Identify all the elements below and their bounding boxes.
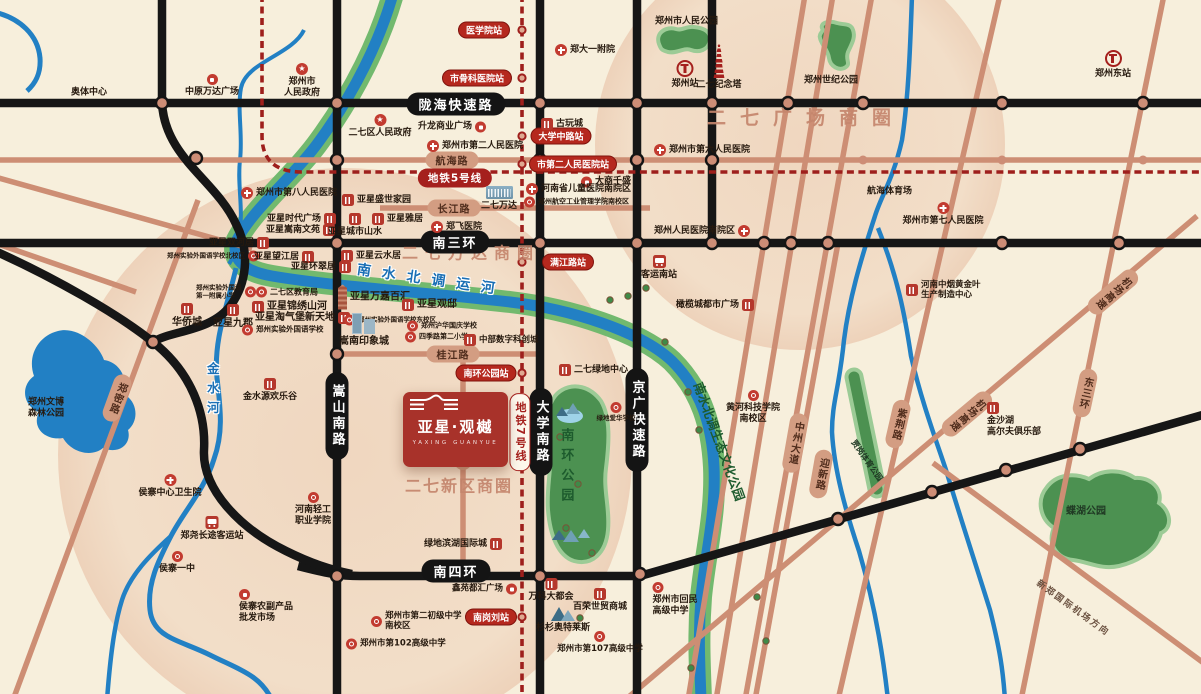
building-icon bbox=[349, 213, 361, 225]
zhongyuan-wanda: 中原万达广场 bbox=[185, 74, 239, 98]
erqi-greenland-center: 二七绿地中心 bbox=[559, 364, 628, 376]
zhengda-first-hospital: 郑大一附院 bbox=[555, 44, 615, 56]
erqi-wanda-building: 二七万达 bbox=[481, 186, 517, 212]
zz-no8-hospital-label: 郑州市第八人民医院 bbox=[256, 188, 337, 199]
tower-icon bbox=[338, 285, 347, 310]
lvdi-aihua-school: 绿地爱华学校 bbox=[597, 402, 636, 423]
hospital-icon bbox=[241, 187, 253, 199]
jinshahu-golf: 金沙湖 高尔夫俱乐部 bbox=[987, 402, 1041, 437]
yaxing-shengshi: 亚星盛世家园 bbox=[342, 194, 411, 206]
zhengfei-hospital: 郑飞医院 bbox=[431, 221, 482, 233]
longhai-expressway-label: 陇海快速路 bbox=[406, 93, 505, 116]
songnan-yinxiangcheng: 嵩南印象城 bbox=[339, 312, 389, 348]
yaxing-songnan: 亚星嵩南文苑 bbox=[266, 224, 335, 236]
zhongbu-digital-label: 中部数字科创城 bbox=[479, 335, 539, 345]
zz-no7-hospital-label: 郑州市第七人民医院 bbox=[902, 216, 983, 227]
erqi-district-gov-label: 二七区人民政府 bbox=[348, 128, 411, 139]
waiguoyu-school-label: 郑州实验外国语学校 bbox=[256, 326, 324, 335]
erqi-district-gov: 二七区人民政府 bbox=[348, 114, 411, 139]
bus-icon bbox=[205, 516, 218, 529]
yaxing-songnan-label: 亚星嵩南文苑 bbox=[266, 225, 320, 236]
houzhai-no1-school: 侯寨一中 bbox=[159, 551, 195, 575]
yaxing-shuanghe-label: 亚星双河居 bbox=[209, 238, 254, 249]
project-logo-mark bbox=[403, 392, 465, 414]
yaxing-wanjia: 亚星万嘉百汇 bbox=[338, 285, 410, 310]
station-manjianglu: 满江路站 bbox=[542, 254, 594, 271]
aoti-center: 奥体中心 bbox=[71, 88, 107, 99]
zhengzhou-station-label: 郑州站 bbox=[671, 79, 698, 90]
building-icon bbox=[490, 538, 502, 550]
yaxing-yunshui-label: 亚星云水居 bbox=[356, 251, 401, 262]
gov-icon bbox=[374, 114, 386, 126]
houzhai-market-label: 侯寨农副产品 批发市场 bbox=[239, 602, 293, 623]
building-icon bbox=[342, 194, 354, 206]
school-icon bbox=[652, 582, 663, 593]
zhengda-first-hospital-label: 郑大一附院 bbox=[570, 45, 615, 56]
yaxing-yaju-label: 亚星雅居 bbox=[387, 214, 423, 225]
biz-erqi-guangchang-label: 二七广场商圈 bbox=[707, 107, 905, 129]
yaxing-chengshi-shanshui-label: 亚星城市山水 bbox=[328, 227, 382, 238]
building-icon bbox=[341, 250, 353, 262]
huhua-guoqing-school: 郑州沪华国庆学校 bbox=[407, 321, 477, 332]
hospital-icon bbox=[431, 221, 443, 233]
zhengzhou-east-station: 郑州东站 bbox=[1095, 50, 1131, 80]
building-icon bbox=[742, 299, 754, 311]
henan-zhongyan: 河南中烟黄金叶 生产制造中心 bbox=[906, 280, 981, 300]
zz-no6-hospital: 郑州市第六人民医院 bbox=[654, 144, 750, 156]
shiji-park-label-label: 郑州世纪公园 bbox=[804, 76, 858, 87]
zz-no8-hospital: 郑州市第八人民医院 bbox=[241, 187, 337, 199]
erqi-memorial-tower: 二七纪念塔 bbox=[696, 44, 741, 91]
biz-erqi-guangchang: 二七广场商圈 bbox=[707, 107, 905, 129]
houzhai-market: 侯寨农副产品 批发市场 bbox=[239, 589, 293, 623]
diehu-park-label-label: 蝶湖公园 bbox=[1066, 506, 1106, 518]
guijiang-rd-label: 桂江路 bbox=[427, 346, 480, 363]
diehu-park-label: 蝶湖公园 bbox=[1066, 506, 1106, 518]
yaxing-wanjia-label: 亚星万嘉百汇 bbox=[350, 291, 410, 303]
jinshuiyuan-valley: 金水源欢乐谷 bbox=[243, 378, 297, 403]
zhengyao-bus-station: 郑尧长途客运站 bbox=[180, 516, 243, 542]
circle-icon bbox=[506, 584, 517, 595]
circle-icon bbox=[206, 74, 217, 85]
station-shidier: 市第二人民医院站 bbox=[529, 156, 617, 173]
huaqiaocheng: 华侨城 bbox=[172, 303, 202, 329]
school-icon bbox=[405, 332, 416, 343]
yaxing-guandi: 亚星观邸 bbox=[402, 299, 457, 311]
biz-erqi-xinqu: 二七新区商圈 bbox=[405, 478, 513, 497]
zz-no6-hospital-label: 郑州市第六人民医院 bbox=[669, 145, 750, 156]
hospital-icon bbox=[427, 140, 439, 152]
children-hospital-south: 河南省儿童医院南院区 bbox=[526, 183, 631, 195]
gov-icon bbox=[296, 63, 308, 75]
keyun-south-station: 客运南站 bbox=[641, 255, 677, 281]
guwancheng: 古玩城 bbox=[541, 118, 583, 130]
building-icon bbox=[594, 588, 606, 600]
mountain-icon bbox=[550, 606, 576, 621]
hospital-icon bbox=[654, 144, 666, 156]
railway-icon bbox=[1104, 50, 1121, 67]
yaxing-taoqibao-label: 亚星淘气堡新天地 bbox=[255, 312, 335, 324]
zhengzhou-gov-label: 郑州市 人民政府 bbox=[284, 77, 320, 98]
school-icon bbox=[245, 287, 256, 298]
erqi-education-bureau-label: 二七区教育局 bbox=[270, 287, 318, 296]
metro-line5-label: 地铁5号线 bbox=[418, 169, 492, 188]
keyun-south-station-label: 客运南站 bbox=[641, 270, 677, 281]
lvdi-binhu-label: 绿地滨湖国际城 bbox=[424, 539, 487, 550]
henan-qinggong-college: 河南轻工 职业学院 bbox=[295, 492, 331, 526]
building-icon bbox=[227, 304, 239, 316]
zz-no2-junior-south-label: 郑州市第二初级中学 南校区 bbox=[385, 611, 462, 631]
hanghai-stadium: 航海体育场 bbox=[867, 187, 912, 198]
citybld-icon bbox=[350, 312, 378, 334]
hospital-icon bbox=[526, 183, 538, 195]
zhengyao-bus-station-label: 郑尧长途客运站 bbox=[180, 531, 243, 542]
school-icon bbox=[242, 325, 253, 336]
hospital-icon bbox=[164, 474, 176, 486]
zz-huimin-school: 郑州市回民 高级中学 bbox=[652, 582, 697, 616]
hangkong-college-south: 郑州航空工业管理学院南校区 bbox=[524, 197, 629, 208]
building-icon bbox=[545, 578, 557, 590]
ganlancheng-plaza: 橄榄城都市广场 bbox=[676, 299, 754, 311]
zhongbu-digital: 中部数字科创城 bbox=[464, 334, 539, 346]
huaqiaocheng-label: 华侨城 bbox=[172, 317, 202, 329]
zz-no107-school-label: 郑州市第107高级中学 bbox=[557, 644, 643, 654]
school-icon bbox=[371, 616, 382, 627]
shanshan-outlets: 杉杉奥特莱斯 bbox=[536, 606, 590, 634]
metro-line7-label: 地铁7号线 bbox=[510, 393, 531, 471]
school-icon bbox=[407, 321, 418, 332]
xinyuan-duhui-label: 鑫苑都汇广场 bbox=[452, 584, 503, 594]
huanghe-college-south-label: 黄河科技学院 南校区 bbox=[726, 403, 780, 424]
zz-no7-hospital: 郑州市第七人民医院 bbox=[902, 202, 983, 227]
aoti-center-label: 奥体中心 bbox=[71, 88, 107, 99]
renmin-park-label-label: 郑州市人民公园 bbox=[655, 17, 718, 28]
songshan-south-rd-label: 嵩山南路 bbox=[326, 372, 349, 460]
yaxing-huancui-label: 亚星环翠居 bbox=[291, 262, 336, 273]
complex-icon bbox=[485, 186, 512, 199]
bus-icon bbox=[652, 255, 665, 268]
hangkong-college-south-label: 郑州航空工业管理学院南校区 bbox=[538, 198, 629, 206]
songnan-yinxiangcheng-label: 嵩南印象城 bbox=[339, 336, 389, 348]
zz-no102-school: 郑州市第102高级中学 bbox=[346, 639, 446, 650]
zhengzhou-station: 郑州站 bbox=[671, 60, 698, 90]
ganlancheng-plaza-label: 橄榄城都市广场 bbox=[676, 300, 739, 311]
school-icon bbox=[524, 197, 535, 208]
zhengzhou-east-station-label: 郑州东站 bbox=[1095, 69, 1131, 80]
school-icon bbox=[256, 287, 267, 298]
hanghai-stadium-label: 航海体育场 bbox=[867, 187, 912, 198]
building-icon bbox=[464, 334, 476, 346]
building-icon bbox=[181, 303, 193, 315]
building-icon bbox=[906, 284, 918, 296]
guwancheng-label: 古玩城 bbox=[556, 119, 583, 130]
huhua-guoqing-school-label: 郑州沪华国庆学校 bbox=[421, 322, 477, 330]
school-icon bbox=[595, 631, 606, 642]
project-logo: 亚星·观樾 YAXING GUANYUE bbox=[403, 392, 508, 467]
school-icon bbox=[307, 492, 318, 503]
wanke-dadushi-label: 万科大都会 bbox=[528, 592, 573, 603]
yaxing-yunshui: 亚星云水居 bbox=[341, 250, 401, 262]
erqi-memorial-tower-label: 二七纪念塔 bbox=[696, 80, 741, 91]
houzhai-no1-school-label: 侯寨一中 bbox=[159, 564, 195, 575]
zhongyuan-wanda-label: 中原万达广场 bbox=[185, 87, 239, 98]
pagoda-icon bbox=[711, 44, 726, 78]
children-hospital-south-label: 河南省儿童医院南院区 bbox=[541, 184, 631, 195]
waiguoyu-school: 郑州实验外国语学校 bbox=[242, 325, 324, 336]
siji-rd-no2-primary-label: 四季路第二小学 bbox=[419, 333, 468, 341]
yaxing-taoqibao: 亚星淘气堡新天地 bbox=[255, 312, 350, 324]
building-icon bbox=[987, 402, 999, 414]
project-name: 亚星·观樾 bbox=[418, 416, 494, 437]
zhengzhou-gov: 郑州市 人民政府 bbox=[284, 63, 320, 98]
building-icon bbox=[402, 299, 414, 311]
waiguoyu-primary: 郑州实验外国语 第一附属小学 bbox=[196, 284, 256, 299]
jinshahu-golf-label: 金沙湖 高尔夫俱乐部 bbox=[987, 416, 1041, 437]
wenbo-forest-park: 郑州文博 森林公园 bbox=[28, 397, 64, 418]
station-shiguke: 市骨科医院站 bbox=[442, 70, 512, 87]
jinshui-river-label: 金水河 bbox=[204, 362, 219, 421]
building-icon bbox=[541, 118, 553, 130]
school-icon bbox=[346, 639, 357, 650]
erqi-education-bureau: 二七区教育局 bbox=[256, 287, 318, 298]
zz-no2-hospital-label: 郑州市第二人民医院 bbox=[442, 141, 523, 152]
hanghai-rd-label: 航海路 bbox=[426, 152, 479, 169]
waiguoyu-north-campus: 郑州实验外国语学校北校区 bbox=[167, 251, 259, 262]
school-icon bbox=[611, 402, 622, 413]
renmin-hospital-south: 郑州人民医院南院区 bbox=[654, 225, 750, 237]
jinshui-river-label-label: 金水河 bbox=[204, 362, 219, 421]
shenglong-plaza-label: 升龙商业广场 bbox=[418, 122, 472, 133]
jinshuiyuan-valley-label: 金水源欢乐谷 bbox=[243, 392, 297, 403]
shenglong-plaza: 升龙商业广场 bbox=[418, 122, 486, 133]
location-map: 亚星·观樾 YAXING GUANYUE 陇海快速路南三环南四环嵩山南路大学南路… bbox=[0, 0, 1201, 694]
lvdi-aihua-school-label: 绿地爱华学校 bbox=[597, 415, 636, 423]
waiguoyu-north-campus-label: 郑州实验外国语学校北校区 bbox=[167, 252, 245, 260]
siji-rd-no2-primary: 四季路第二小学 bbox=[405, 332, 468, 343]
yaxing-shengshi-label: 亚星盛世家园 bbox=[357, 195, 411, 206]
daxue-south-rd-label: 大学南路 bbox=[530, 388, 553, 476]
station-yixueyuan: 医学院站 bbox=[458, 22, 510, 39]
xinyuan-duhui: 鑫苑都汇广场 bbox=[452, 584, 517, 595]
nanhuan-park-label-label: 南环公园 bbox=[558, 428, 573, 508]
building-icon bbox=[264, 378, 276, 390]
station-daxuezhonglu: 大学中路站 bbox=[530, 128, 591, 145]
zz-no2-junior-south: 郑州市第二初级中学 南校区 bbox=[371, 611, 462, 631]
station-nanhuanpark: 南环公园站 bbox=[455, 365, 516, 382]
circle-icon bbox=[475, 122, 486, 133]
hospital-icon bbox=[555, 44, 567, 56]
zz-huimin-school-label: 郑州市回民 高级中学 bbox=[652, 595, 697, 616]
wanke-dadushi: 万科大都会 bbox=[528, 578, 573, 603]
houzhai-clinic: 侯寨中心卫生院 bbox=[138, 474, 201, 499]
erqi-wanda-building-label: 二七万达 bbox=[481, 201, 517, 212]
yaxing-chengshi-shanshui: 亚星城市山水 bbox=[328, 213, 382, 238]
wenbo-forest-park-label: 郑州文博 森林公园 bbox=[28, 397, 64, 418]
lvdi-binhu: 绿地滨湖国际城 bbox=[424, 538, 502, 550]
henan-zhongyan-label: 河南中烟黄金叶 生产制造中心 bbox=[921, 280, 981, 300]
houzhai-clinic-label: 侯寨中心卫生院 bbox=[138, 488, 201, 499]
waiguoyu-primary-label: 郑州实验外国语 第一附属小学 bbox=[196, 284, 242, 299]
zz-no2-hospital: 郑州市第二人民医院 bbox=[427, 140, 523, 152]
erqi-greenland-center-label: 二七绿地中心 bbox=[574, 365, 628, 376]
zhengfei-hospital-label: 郑飞医院 bbox=[446, 222, 482, 233]
zz-no102-school-label: 郑州市第102高级中学 bbox=[360, 639, 446, 649]
hospital-icon bbox=[738, 225, 750, 237]
huanghe-college-south: 黄河科技学院 南校区 bbox=[726, 390, 780, 424]
project-name-en: YAXING GUANYUE bbox=[413, 440, 499, 446]
renmin-hospital-south-label: 郑州人民医院南院区 bbox=[654, 226, 735, 237]
station-nangangliu: 南岗刘站 bbox=[465, 609, 517, 626]
circle-icon bbox=[239, 589, 250, 600]
nanhuan-park-label: 南环公园 bbox=[558, 428, 573, 508]
school-icon bbox=[171, 551, 182, 562]
henan-qinggong-college-label: 河南轻工 职业学院 bbox=[295, 505, 331, 526]
yaxing-guandi-label: 亚星观邸 bbox=[417, 299, 457, 311]
building-icon bbox=[559, 364, 571, 376]
zz-no107-school: 郑州市第107高级中学 bbox=[557, 631, 643, 654]
yaxing-shidai-label: 亚星时代广场 bbox=[267, 214, 321, 225]
biz-erqi-xinqu-label: 二七新区商圈 bbox=[405, 478, 513, 497]
south-3rd-ring-label: 南三环 bbox=[420, 231, 489, 254]
school-icon bbox=[747, 390, 758, 401]
yaxing-shuanghe: 亚星双河居 bbox=[209, 237, 269, 249]
building-icon bbox=[257, 237, 269, 249]
railway-icon bbox=[676, 60, 693, 77]
renmin-park-label: 郑州市人民公园 bbox=[655, 17, 718, 28]
building-icon bbox=[339, 261, 351, 273]
changjiang-rd-label: 长江路 bbox=[428, 200, 481, 217]
yaxing-huancui: 亚星环翠居 bbox=[291, 261, 351, 273]
south-4th-ring-label: 南四环 bbox=[421, 560, 490, 583]
shiji-park-label: 郑州世纪公园 bbox=[804, 76, 858, 87]
hospital-icon bbox=[937, 202, 949, 214]
